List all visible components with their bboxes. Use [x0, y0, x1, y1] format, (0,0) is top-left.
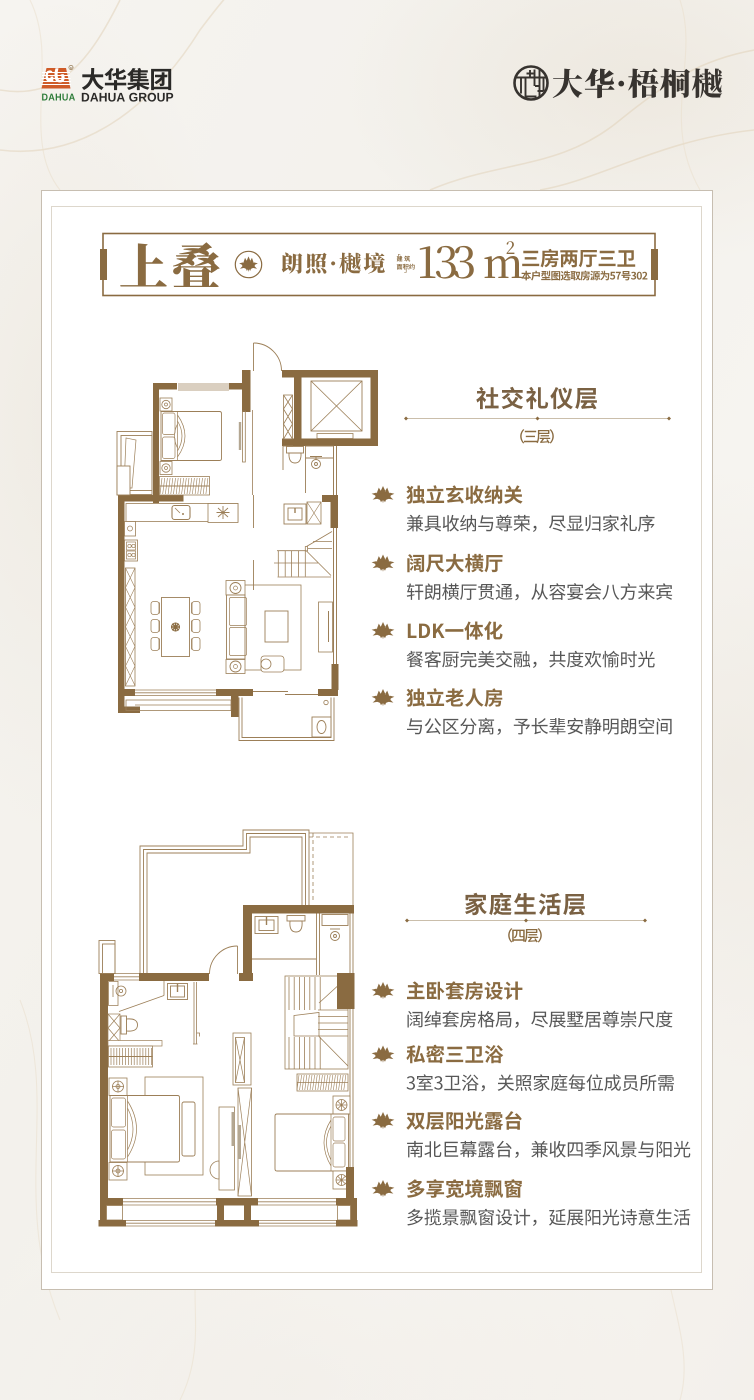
- svg-text:R: R: [70, 65, 73, 70]
